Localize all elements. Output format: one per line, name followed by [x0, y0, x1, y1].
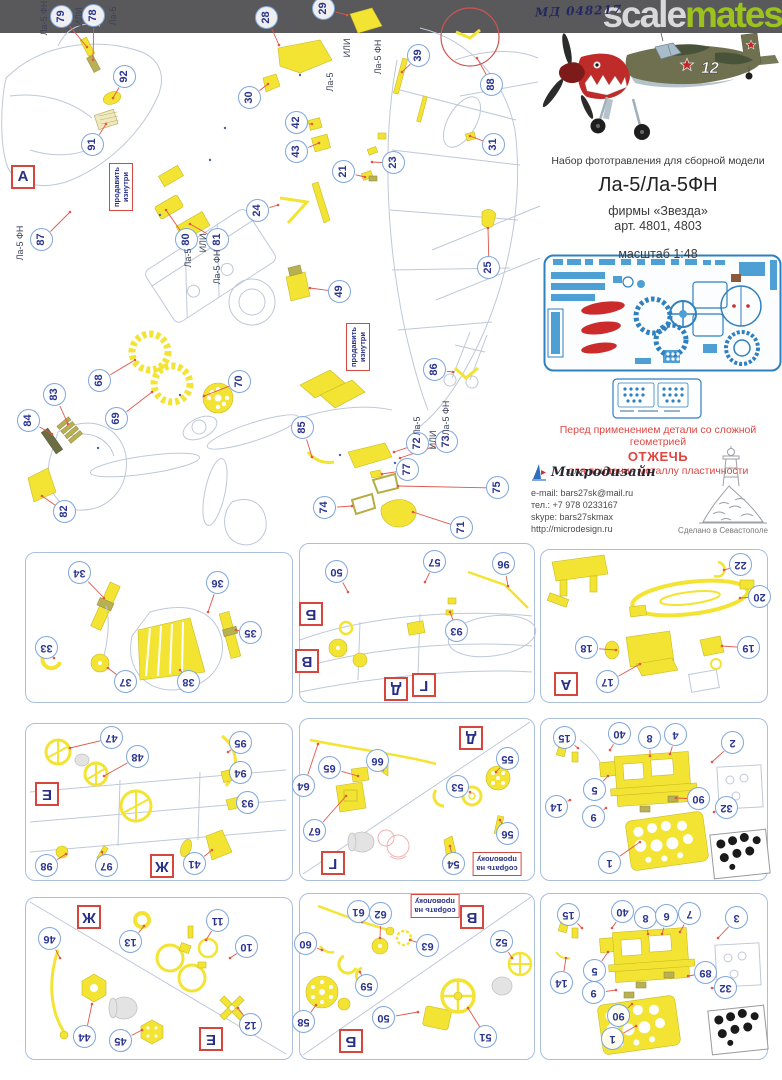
made-in-caption: Сделано в Севастополе [658, 526, 782, 535]
photoetch-fret-small [612, 378, 702, 419]
publisher-email: e-mail: bars27sk@mail.ru [531, 487, 656, 499]
product-title: Ла-5/Ла-5ФН [538, 174, 778, 197]
publisher-name: Микродизайн [551, 465, 656, 480]
warning-line-1: Перед применением детали со сложной геом… [538, 424, 778, 448]
box-art-photo: 12 [535, 33, 782, 153]
publisher-skype: skype: bars27skmax [531, 511, 656, 523]
aircraft-number: 12 [701, 60, 719, 77]
instruction-sheet-page: scalemates МД 048217 [0, 0, 782, 1080]
microdesign-logo-icon [531, 462, 547, 482]
product-description: Набор фототравления для сборной модели [538, 155, 778, 167]
product-info: Набор фототравления для сборной модели Л… [538, 155, 778, 261]
publisher-block: Микродизайн e-mail: bars27sk@mail.ru тел… [531, 462, 656, 535]
product-scale: масштаб 1:48 [538, 247, 778, 261]
publisher-phone: тел.: +7 978 0233167 [531, 499, 656, 511]
photoetch-fret-large [543, 254, 782, 372]
product-articles: арт. 4801, 4803 [538, 219, 778, 233]
product-brand: фирмы «Звезда» [538, 204, 778, 218]
publisher-site: http://microdesign.ru [531, 523, 656, 535]
